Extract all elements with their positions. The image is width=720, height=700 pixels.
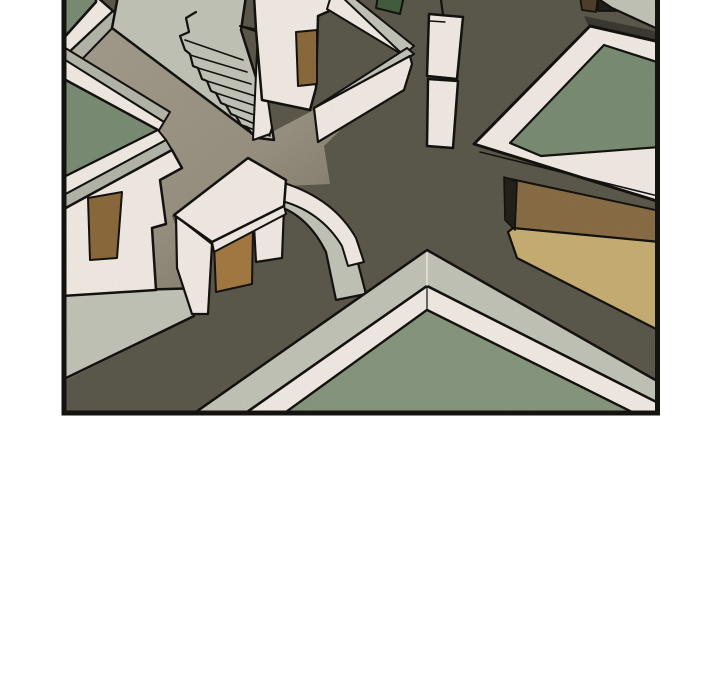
comic-panel-image [0, 0, 720, 700]
village-aerial-scene [0, 0, 720, 700]
paper-grain-texture [64, 0, 658, 412]
